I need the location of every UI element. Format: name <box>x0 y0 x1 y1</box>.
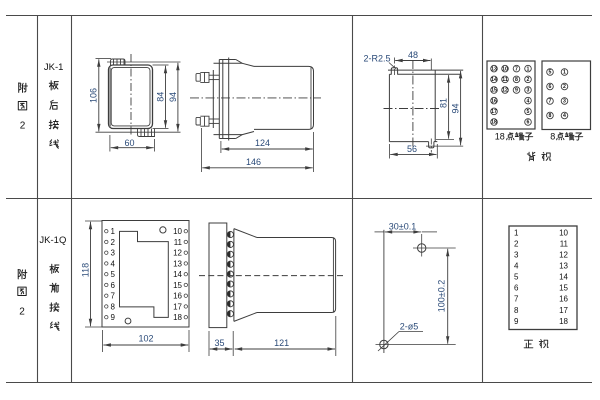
svg-text:2-ø5: 2-ø5 <box>400 322 419 332</box>
svg-text:JK-1Q: JK-1Q <box>39 235 66 246</box>
svg-text:10: 10 <box>502 66 508 72</box>
svg-text:3: 3 <box>563 99 566 105</box>
svg-text:7: 7 <box>515 66 518 72</box>
svg-text:2: 2 <box>514 239 519 248</box>
svg-text:6: 6 <box>527 120 530 126</box>
svg-text:14: 14 <box>173 270 182 279</box>
svg-text:14: 14 <box>491 77 497 83</box>
svg-text:13: 13 <box>559 262 568 271</box>
svg-text:13: 13 <box>173 259 182 268</box>
svg-text:16: 16 <box>173 292 182 301</box>
svg-text:18: 18 <box>559 317 568 326</box>
svg-text:8: 8 <box>550 132 555 142</box>
svg-text:94: 94 <box>168 92 178 102</box>
svg-text:146: 146 <box>246 157 261 167</box>
svg-text:8: 8 <box>549 113 552 119</box>
svg-text:48: 48 <box>408 50 418 60</box>
svg-text:7: 7 <box>514 295 519 304</box>
svg-text:2-R2.5: 2-R2.5 <box>363 54 390 64</box>
svg-text:56: 56 <box>407 144 417 154</box>
svg-text:2: 2 <box>111 238 116 247</box>
svg-text:94: 94 <box>451 103 461 113</box>
svg-text:10: 10 <box>173 227 182 236</box>
svg-text:16: 16 <box>491 98 497 104</box>
svg-text:18: 18 <box>495 132 505 142</box>
svg-text:4: 4 <box>111 259 116 268</box>
svg-text:1: 1 <box>563 70 566 76</box>
svg-text:3: 3 <box>527 88 530 94</box>
svg-text:7: 7 <box>111 292 116 301</box>
svg-text:18: 18 <box>173 313 182 322</box>
svg-text:11: 11 <box>502 77 508 83</box>
svg-text:15: 15 <box>173 281 182 290</box>
svg-text:5: 5 <box>111 270 116 279</box>
svg-text:1: 1 <box>527 66 530 72</box>
svg-text:9: 9 <box>111 313 116 322</box>
svg-text:14: 14 <box>559 273 568 282</box>
svg-text:4: 4 <box>514 262 519 271</box>
svg-text:84: 84 <box>156 92 166 102</box>
svg-text:2: 2 <box>563 84 566 90</box>
svg-text:15: 15 <box>559 284 568 293</box>
svg-text:6: 6 <box>514 284 519 293</box>
svg-text:11: 11 <box>560 239 569 248</box>
svg-text:12: 12 <box>173 249 182 258</box>
svg-text:3: 3 <box>514 250 519 259</box>
svg-text:106: 106 <box>89 88 99 103</box>
svg-text:102: 102 <box>138 334 153 344</box>
svg-text:4: 4 <box>563 113 566 119</box>
svg-text:1: 1 <box>111 227 116 236</box>
svg-text:81: 81 <box>439 98 449 108</box>
svg-text:10: 10 <box>559 228 568 237</box>
svg-text:7: 7 <box>549 99 552 105</box>
svg-text:9: 9 <box>514 317 519 326</box>
svg-text:6: 6 <box>111 281 116 290</box>
svg-text:1: 1 <box>514 228 519 237</box>
svg-text:5: 5 <box>549 70 552 76</box>
svg-text:60: 60 <box>124 138 134 148</box>
svg-text:12: 12 <box>559 250 568 259</box>
svg-text:5: 5 <box>514 273 519 282</box>
svg-text:118: 118 <box>80 263 90 277</box>
svg-text:18: 18 <box>491 120 497 126</box>
svg-text:17: 17 <box>173 302 182 311</box>
svg-text:12: 12 <box>502 88 508 94</box>
svg-text:2: 2 <box>20 121 26 132</box>
svg-text:2: 2 <box>19 306 25 317</box>
svg-text:13: 13 <box>491 66 497 72</box>
svg-text:3: 3 <box>111 249 116 258</box>
svg-text:124: 124 <box>255 138 270 148</box>
svg-text:15: 15 <box>491 88 497 94</box>
svg-text:100±0.2: 100±0.2 <box>436 280 446 312</box>
svg-text:16: 16 <box>559 295 568 304</box>
svg-text:6: 6 <box>549 84 552 90</box>
svg-text:JK-1: JK-1 <box>44 62 64 73</box>
svg-text:121: 121 <box>274 338 289 348</box>
svg-text:30±0.1: 30±0.1 <box>389 222 416 232</box>
svg-text:8: 8 <box>515 77 518 83</box>
svg-text:8: 8 <box>111 302 116 311</box>
svg-text:11: 11 <box>174 238 183 247</box>
svg-text:5: 5 <box>527 109 530 115</box>
svg-text:17: 17 <box>491 109 497 115</box>
svg-text:4: 4 <box>527 98 530 104</box>
svg-text:8: 8 <box>514 306 519 315</box>
svg-text:2: 2 <box>527 77 530 83</box>
svg-text:17: 17 <box>559 306 568 315</box>
svg-text:35: 35 <box>214 338 224 348</box>
svg-text:9: 9 <box>515 88 518 94</box>
